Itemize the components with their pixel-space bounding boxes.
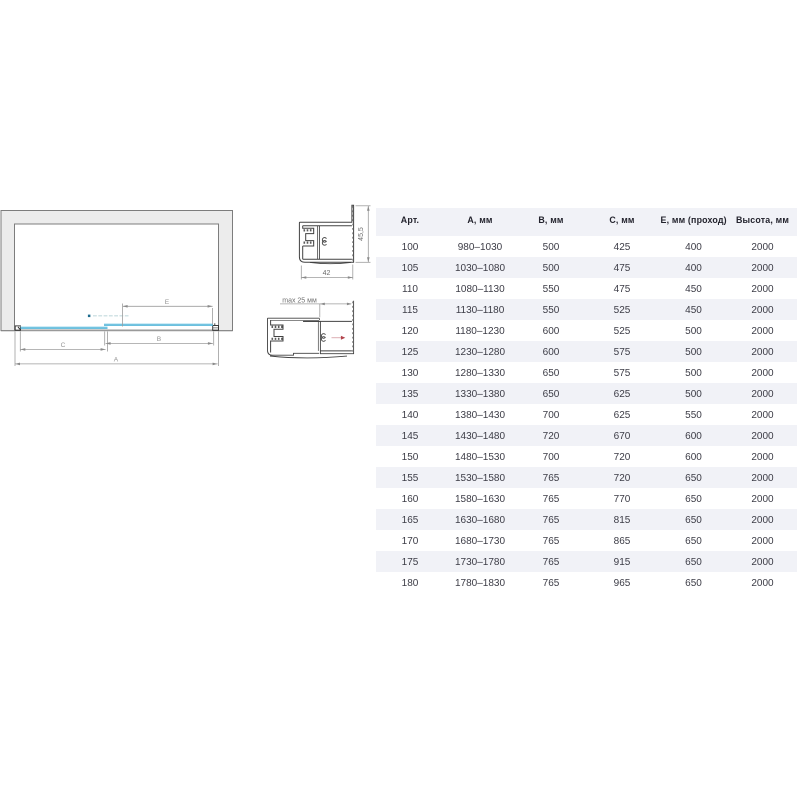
svg-text:42: 42 bbox=[323, 270, 331, 277]
svg-text:45,5: 45,5 bbox=[358, 227, 365, 241]
svg-text:max 25 мм: max 25 мм bbox=[282, 297, 317, 304]
svg-text:C: C bbox=[61, 342, 66, 349]
svg-text:B: B bbox=[157, 336, 162, 343]
svg-text:E: E bbox=[165, 299, 170, 306]
svg-text:A: A bbox=[114, 357, 119, 364]
